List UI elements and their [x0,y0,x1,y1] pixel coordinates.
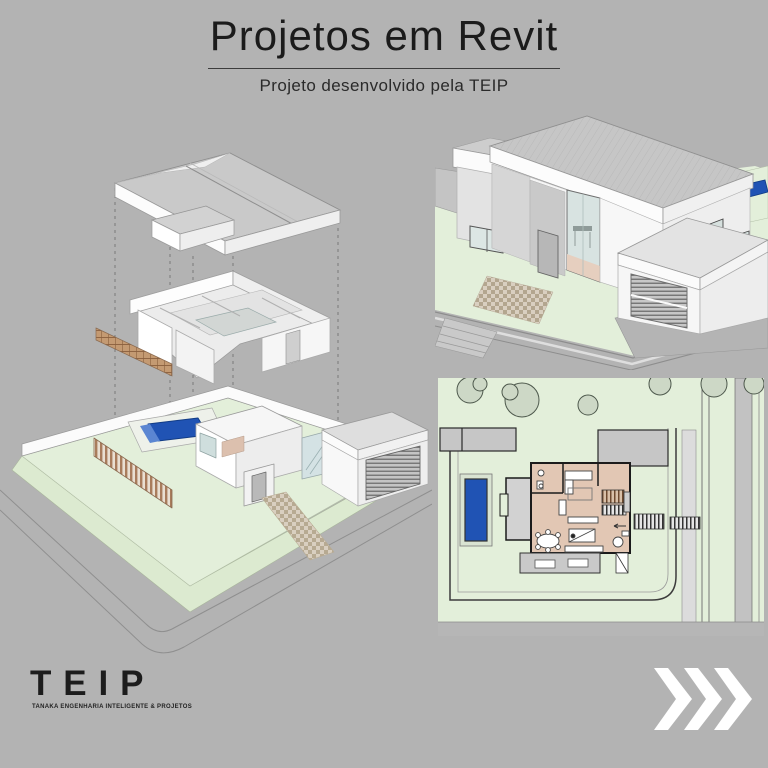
interior-stairs [602,490,624,503]
boundary-wall [435,168,460,214]
page-title: Projetos em Revit [0,12,768,60]
site-plan-illustration [438,378,764,636]
teip-logo: TEIP TANAKA ENGENHARIA INTELIGENTE & PRO… [30,666,192,710]
poster: Projetos em Revit Projeto desenvolvido p… [0,0,768,768]
triple-chevron-right-icon [652,660,764,738]
pool [460,474,492,546]
exploded-axonometric-view [0,138,432,668]
title-divider [208,68,560,69]
site-plan-view [438,378,764,636]
next-page-chevrons[interactable] [652,660,764,738]
exploded-axonometric-illustration [0,138,432,668]
teip-logo-tagline: TANAKA ENGENHARIA INTELIGENTE & PROJETOS [32,704,192,710]
roof-layer [115,153,340,255]
entry-door [538,230,558,278]
garage-volume [322,412,428,506]
glass-opening [567,190,600,282]
exterior-3d-render-view [435,106,768,370]
ground-floor-layer [0,386,432,653]
header: Projetos em Revit Projeto desenvolvido p… [0,12,768,96]
walls-layer [96,271,330,384]
teip-logo-text: TEIP [30,666,192,703]
page-subtitle: Projeto desenvolvido pela TEIP [0,76,768,96]
exterior-3d-render-illustration [435,106,768,370]
